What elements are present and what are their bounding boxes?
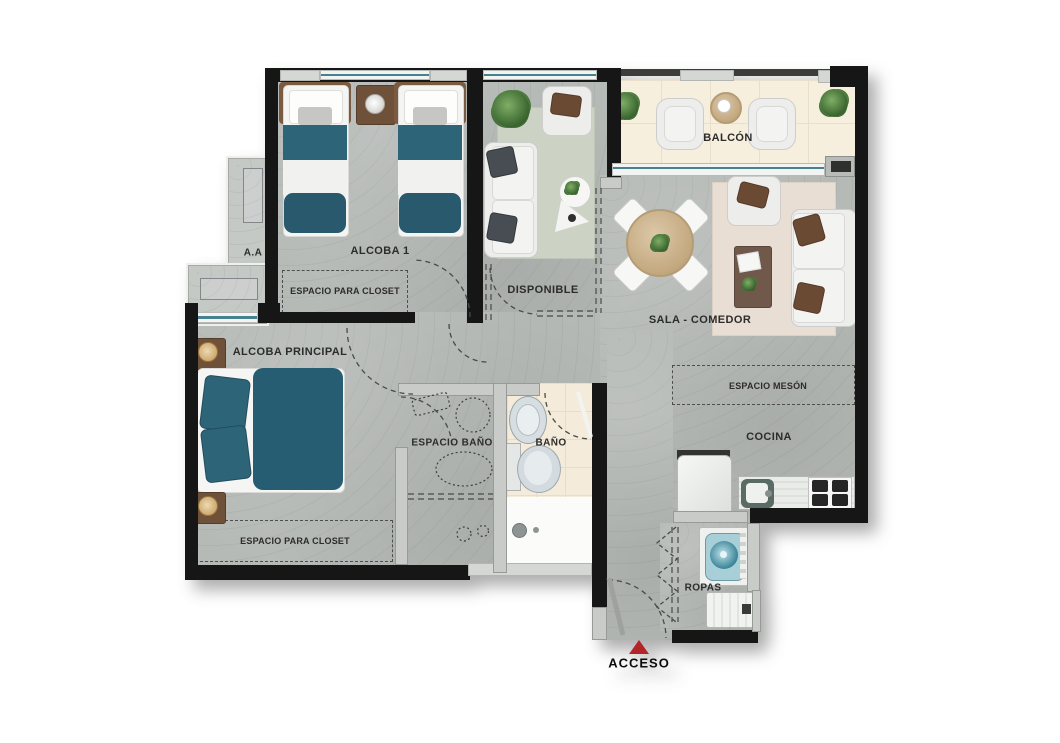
wall-alcoba1-bottom bbox=[265, 312, 415, 323]
room-label-cocina: COCINA bbox=[746, 431, 792, 443]
ac-unit-vertical bbox=[243, 168, 263, 223]
ac-unit-horizontal bbox=[200, 278, 258, 300]
plant-disponible bbox=[492, 90, 530, 128]
room-label-alcoba-principal: ALCOBA PRINCIPAL bbox=[233, 346, 348, 358]
apartment-floorplan: BALCÓN ALCOBA 1 DISPONIBLE SALA - COMEDO… bbox=[0, 0, 1060, 743]
room-label-espacio-banio: ESPACIO BAÑO bbox=[411, 438, 492, 449]
wall-kitchen-bottom bbox=[750, 508, 868, 523]
entry-jamb bbox=[592, 607, 607, 640]
annotation-meson: ESPACIO MESÓN bbox=[729, 381, 807, 391]
annotation-acceso: ACCESO bbox=[608, 656, 670, 671]
partition-banio-top bbox=[398, 383, 540, 396]
access-arrow-icon bbox=[629, 640, 649, 654]
wall-bottom-ropas bbox=[672, 630, 758, 643]
wall-bottom-principal bbox=[185, 565, 470, 580]
wall-alcoba1-left bbox=[265, 80, 278, 312]
room-label-ropas: ROPAS bbox=[685, 583, 722, 594]
room-label-alcoba1: ALCOBA 1 bbox=[350, 245, 409, 257]
wall-divider-alcoba1 bbox=[467, 68, 483, 323]
annotation-closet-principal: ESPACIO PARA CLOSET bbox=[240, 536, 350, 546]
room-label-aa: A.A bbox=[244, 248, 262, 259]
annotation-closet-alcoba1: ESPACIO PARA CLOSET bbox=[290, 286, 400, 296]
window-alcoba1 bbox=[320, 70, 430, 80]
floorplan-canvas: BALCÓN ALCOBA 1 DISPONIBLE SALA - COMEDO… bbox=[0, 0, 1060, 743]
partition-banio-mid bbox=[493, 383, 507, 573]
duvet bbox=[253, 368, 343, 490]
room-label-balcon: BALCÓN bbox=[703, 132, 752, 144]
wall-left bbox=[185, 303, 198, 580]
partition-fridge-shelf bbox=[673, 511, 748, 523]
window-shower bbox=[468, 563, 592, 576]
room-label-banio: BAÑO bbox=[535, 438, 566, 449]
window-disponible bbox=[483, 70, 597, 80]
partition-banio-left bbox=[395, 447, 408, 565]
window-balcony-sala bbox=[612, 163, 825, 176]
wall-bath-right bbox=[592, 383, 607, 607]
wall-right bbox=[855, 66, 868, 523]
room-label-disponible: DISPONIBLE bbox=[507, 284, 578, 296]
partition-ropas-right bbox=[747, 523, 760, 592]
wall-balcony-post bbox=[607, 68, 621, 178]
window-aa bbox=[188, 312, 258, 323]
lamp bbox=[365, 94, 385, 114]
room-label-sala-comedor: SALA - COMEDOR bbox=[649, 314, 751, 326]
plant-balcony-right bbox=[820, 89, 848, 117]
